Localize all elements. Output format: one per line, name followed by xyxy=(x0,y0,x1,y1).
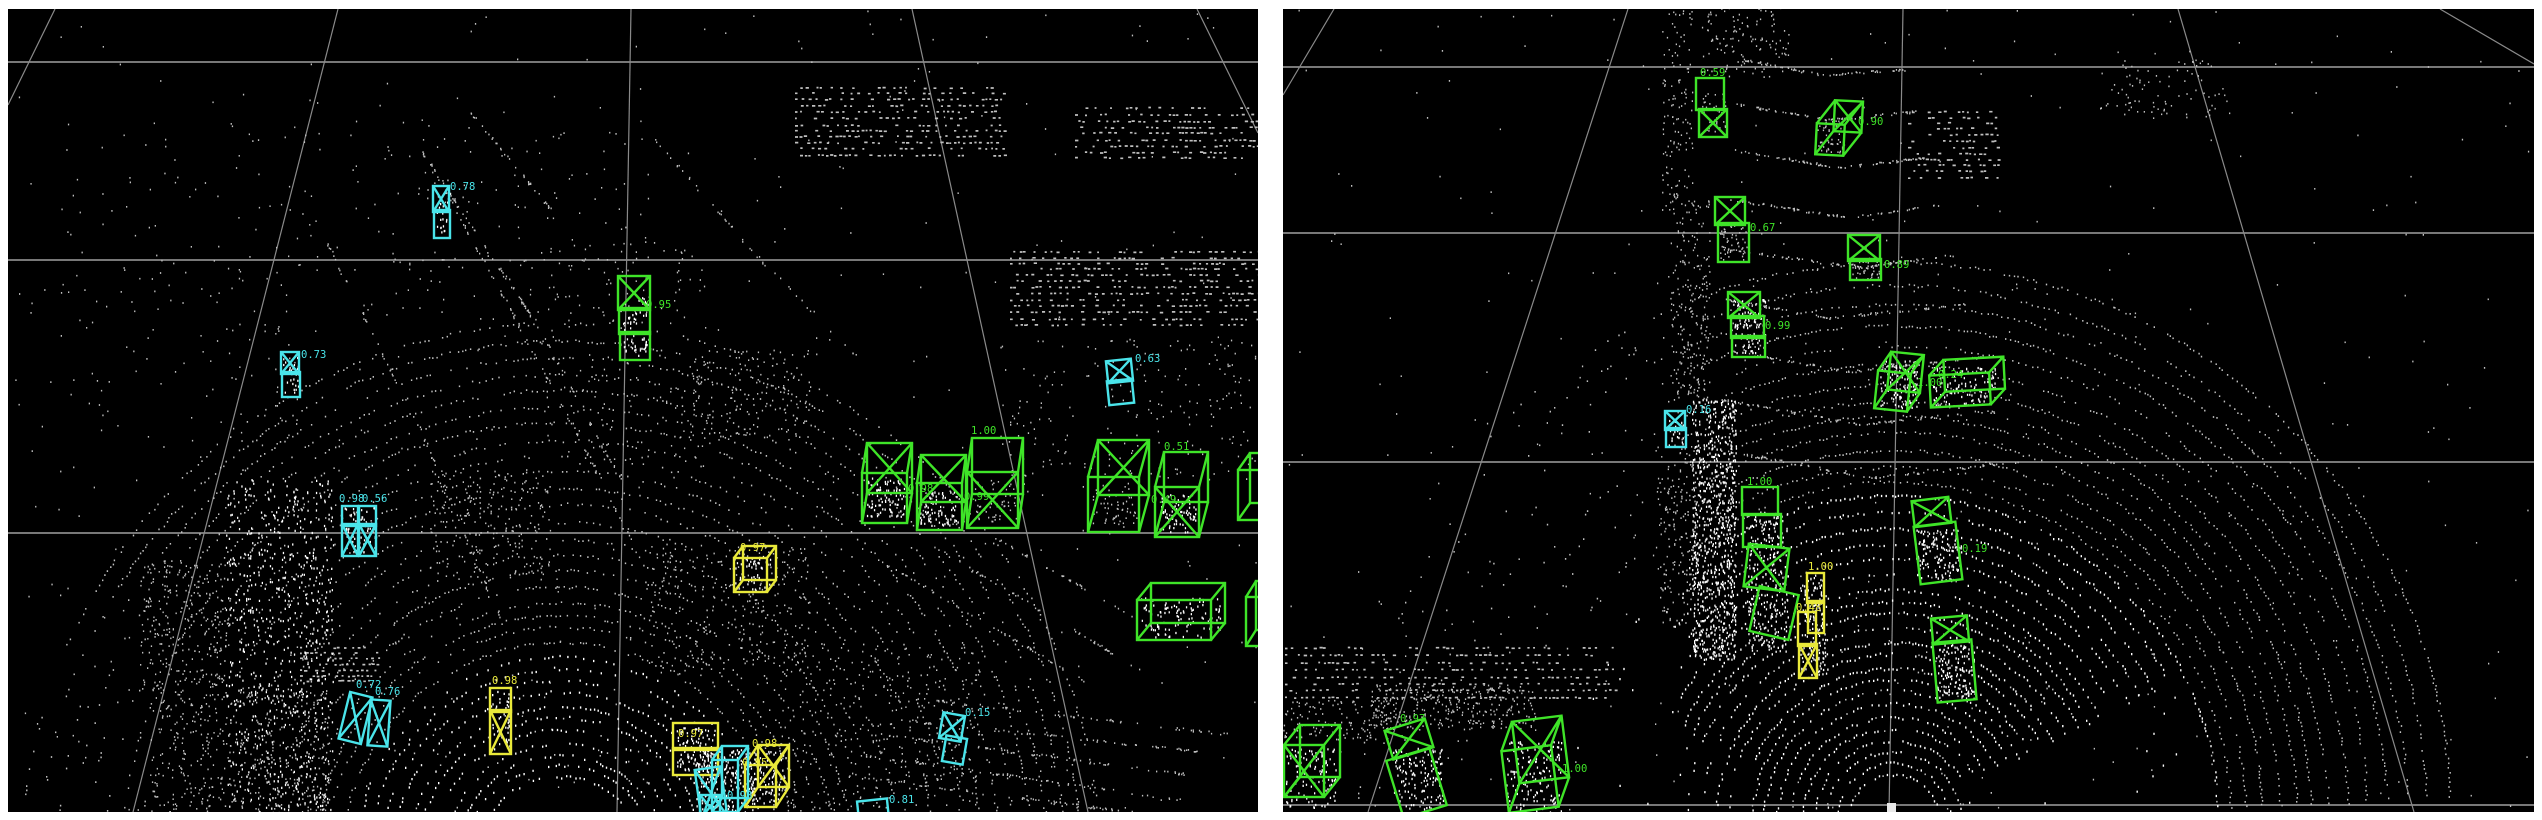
confidence-score-label: 0.73 xyxy=(301,349,326,361)
confidence-score-label: 0.81 xyxy=(889,794,914,806)
confidence-score-label: 1.00 xyxy=(971,425,996,437)
confidence-score-label: 0.16 xyxy=(1686,404,1711,416)
confidence-score-label: 0.98 xyxy=(727,790,752,802)
confidence-score-label: 1.00 xyxy=(1808,561,1833,573)
confidence-score-label: 0.19 xyxy=(1962,543,1987,555)
left-view-svg: 0.780.730.980.560.720.760.980.970.970.98… xyxy=(8,9,1258,812)
confidence-score-label: 0.51 xyxy=(1164,441,1189,453)
confidence-score-label: 0.56 xyxy=(362,493,387,505)
confidence-score-label: 0.99 xyxy=(1765,320,1790,332)
confidence-score-label: 0.98 xyxy=(752,738,777,750)
confidence-score-label: 0.15 xyxy=(965,707,990,719)
confidence-score-label: 0.63 xyxy=(1135,353,1160,365)
confidence-score-label: 0.48 xyxy=(1796,602,1821,614)
confidence-score-label: 0.78 xyxy=(450,181,475,193)
confidence-score-label: 0.24 xyxy=(1938,369,1963,381)
confidence-score-label: 0.90 xyxy=(1858,116,1883,128)
lidar-detection-visualization: 0.780.730.980.560.720.760.980.970.970.98… xyxy=(0,0,2542,820)
confidence-score-label: 0.97 xyxy=(740,542,765,554)
right-view-panel[interactable]: 0.590.900.670.890.991.000.241.000.190.97… xyxy=(1283,9,2534,812)
left-view-panel[interactable]: 0.780.730.980.560.720.760.980.970.970.98… xyxy=(8,9,1258,812)
confidence-score-label: 0.59 xyxy=(1700,67,1725,79)
confidence-score-label: 0.76 xyxy=(375,686,400,698)
confidence-score-label: 0.67 xyxy=(1750,222,1775,234)
ego-vehicle-marker xyxy=(1887,803,1896,812)
confidence-score-label: 0.89 xyxy=(1884,259,1909,271)
confidence-score-label: 0.95 xyxy=(646,299,671,311)
confidence-score-label: 0.98 xyxy=(492,675,517,687)
confidence-score-label: 0.97 xyxy=(1400,713,1425,725)
confidence-score-label: 1.00 xyxy=(1562,763,1587,775)
viewport-background xyxy=(8,9,1258,812)
confidence-score-label: 0.49 xyxy=(1151,494,1176,506)
right-view-svg: 0.590.900.670.890.991.000.241.000.190.97… xyxy=(1283,9,2534,812)
confidence-score-label: 0.95 xyxy=(742,757,767,769)
confidence-score-label: 0.97 xyxy=(678,728,703,740)
confidence-score-label: 1.00 xyxy=(1747,476,1772,488)
confidence-score-label: 0.98 xyxy=(339,493,364,505)
